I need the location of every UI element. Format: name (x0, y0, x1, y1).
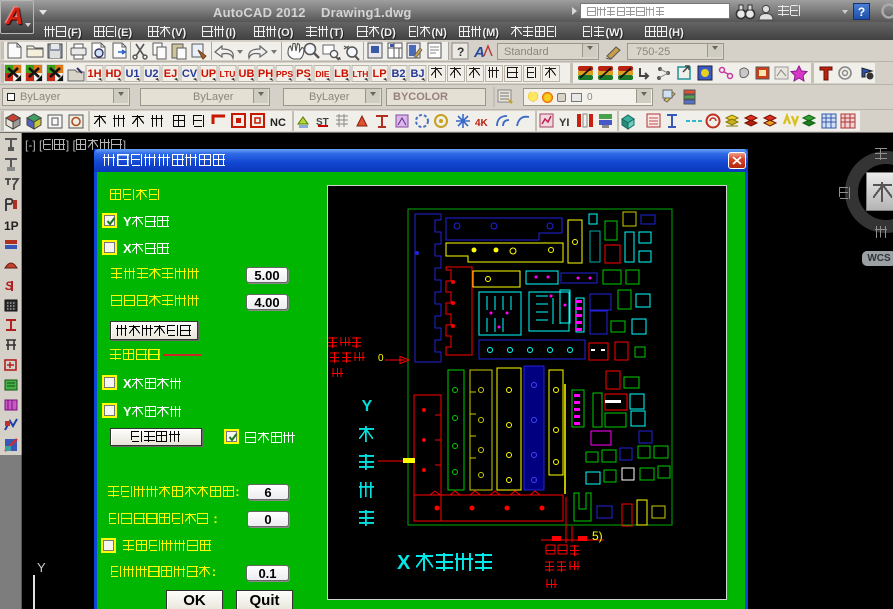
svg-text:5): 5) (592, 529, 603, 543)
svg-text:U2: U2 (144, 68, 158, 80)
svg-text:DIE: DIE (315, 69, 330, 79)
svg-text:4K: 4K (475, 118, 489, 129)
svg-text:0: 0 (378, 353, 384, 364)
svg-text:UP: UP (201, 68, 216, 80)
svg-text:A: A (473, 44, 485, 61)
svg-text:PH: PH (258, 68, 273, 80)
svg-text:?: ? (457, 45, 464, 59)
svg-text:1P: 1P (4, 219, 19, 233)
svg-text:YI: YI (559, 117, 569, 129)
svg-text:HD: HD (106, 68, 122, 80)
svg-text:LTH: LTH (353, 69, 369, 79)
svg-text:BJ: BJ (410, 68, 424, 80)
svg-text:PS: PS (296, 68, 311, 80)
svg-text:LTU: LTU (220, 69, 236, 79)
svg-text:PPS: PPS (276, 69, 293, 79)
svg-text:UB: UB (239, 68, 255, 80)
svg-text:EJ: EJ (164, 68, 177, 80)
svg-text:1H: 1H (87, 68, 101, 80)
svg-text:B2: B2 (391, 68, 405, 80)
svg-text:LP: LP (372, 68, 386, 80)
svg-text:LB: LB (334, 68, 349, 80)
svg-text:NC: NC (270, 117, 286, 129)
svg-text:U1: U1 (125, 68, 139, 80)
